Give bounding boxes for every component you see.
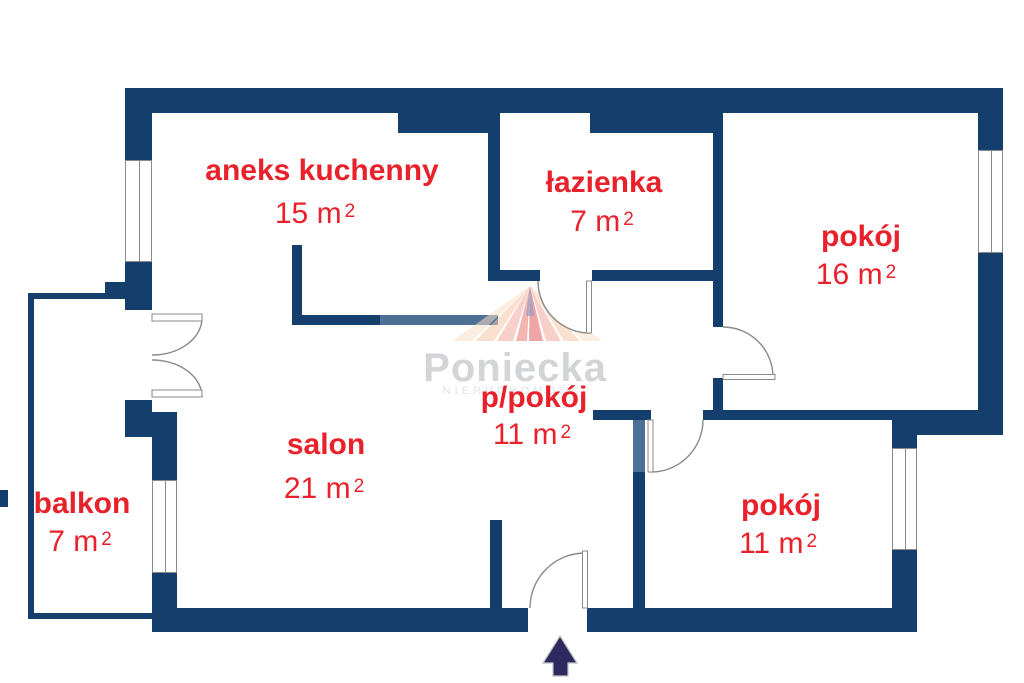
entrance-arrow-icon bbox=[0, 0, 1024, 683]
floor-plan: Poniecka NIERUCHOMOŚCI aneks kuchenny 15… bbox=[0, 0, 1024, 683]
